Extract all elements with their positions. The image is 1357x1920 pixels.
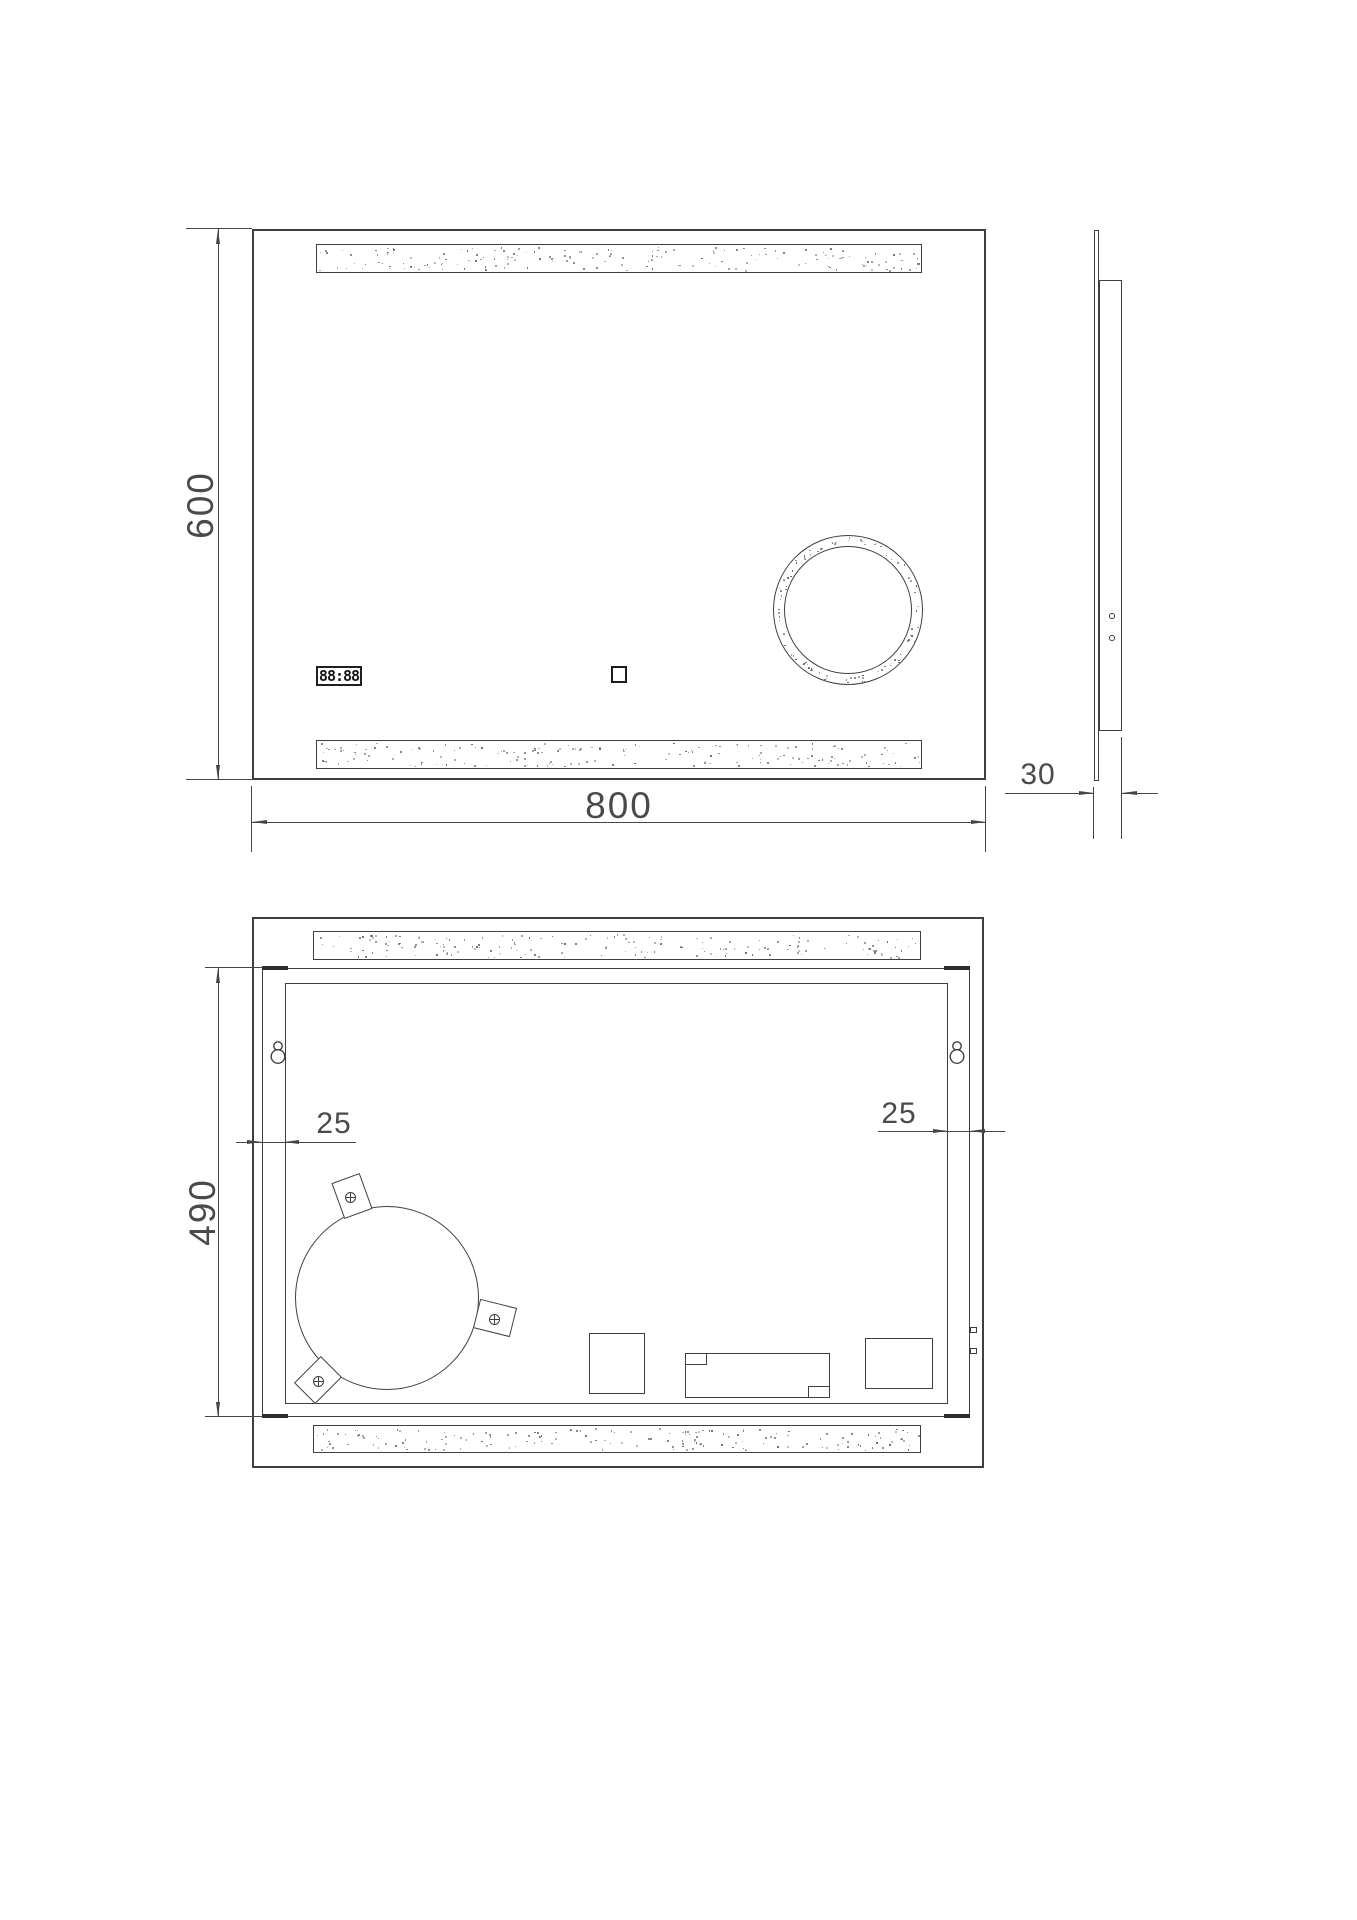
frame-corner-tick-bl — [262, 1414, 288, 1418]
junction-box — [589, 1333, 645, 1394]
stipple-dot — [439, 257, 440, 258]
stipple-dot — [759, 254, 760, 255]
stipple-dot — [538, 956, 540, 958]
stipple-dot — [851, 1433, 853, 1435]
frame-corner-tick-tl — [262, 966, 288, 970]
stipple-dot — [779, 616, 781, 618]
stipple-dot — [830, 760, 832, 762]
stipple-dot — [777, 758, 779, 760]
stipple-dot — [617, 934, 618, 935]
stipple-dot — [369, 939, 371, 941]
stipple-dot — [459, 747, 460, 748]
stipple-dot — [376, 743, 377, 744]
stipple-dot — [842, 763, 843, 764]
stipple-dot — [842, 250, 844, 252]
stipple-dot — [861, 756, 863, 758]
stipple-dot — [586, 761, 588, 763]
stipple-dot — [868, 1434, 869, 1435]
stipple-dot — [680, 946, 682, 948]
dim-490-arrow-down — [216, 1402, 220, 1417]
stipple-dot — [575, 943, 577, 945]
stipple-dot — [755, 259, 756, 260]
stipple-dot — [490, 1444, 491, 1445]
stipple-dot — [863, 949, 864, 950]
stipple-dot — [375, 935, 377, 937]
stipple-dot — [789, 945, 790, 946]
stipple-dot — [878, 1432, 880, 1434]
stipple-dot — [715, 745, 716, 746]
stipple-dot — [654, 942, 655, 943]
stipple-dot — [467, 250, 468, 251]
stipple-dot — [551, 258, 553, 260]
stipple-dot — [864, 942, 866, 944]
stipple-dot — [538, 748, 539, 749]
stipple-dot — [792, 570, 794, 572]
stipple-dot — [393, 252, 394, 253]
stipple-dot — [760, 759, 761, 760]
stipple-dot — [858, 1444, 859, 1445]
stipple-dot — [709, 263, 710, 264]
stipple-dot — [359, 937, 361, 939]
stipple-dot — [878, 940, 879, 941]
stipple-dot — [679, 265, 680, 266]
stipple-dot — [410, 257, 412, 259]
stipple-dot — [701, 258, 702, 259]
stipple-dot — [901, 268, 902, 269]
stipple-dot — [759, 1429, 760, 1430]
stipple-dot — [871, 269, 873, 271]
stipple-dot — [847, 682, 849, 684]
stipple-dot — [738, 765, 739, 766]
stipple-dot — [867, 261, 869, 263]
stipple-dot — [623, 751, 624, 752]
stipple-dot — [555, 1438, 557, 1440]
stipple-dot — [635, 744, 636, 745]
stipple-dot — [466, 1439, 467, 1440]
stipple-dot — [805, 263, 806, 264]
stipple-dot — [434, 939, 435, 940]
stipple-dot — [590, 1441, 592, 1443]
stipple-dot — [914, 757, 915, 758]
stipple-dot — [780, 590, 782, 592]
stipple-dot — [564, 943, 565, 944]
stipple-dot — [846, 679, 848, 681]
stipple-dot — [685, 751, 686, 752]
stipple-dot — [919, 762, 920, 763]
stipple-dot — [541, 752, 542, 753]
stipple-dot — [530, 949, 531, 950]
stipple-dot — [449, 939, 450, 940]
stipple-dot — [718, 753, 719, 754]
stipple-dot — [621, 264, 622, 265]
stipple-dot — [327, 1447, 328, 1448]
stipple-dot — [607, 937, 608, 938]
stipple-dot — [843, 257, 844, 258]
rear-led-strip-bottom — [313, 1425, 921, 1453]
screw-icon — [313, 1376, 324, 1387]
stipple-dot — [511, 257, 512, 258]
stipple-dot — [605, 947, 607, 949]
dim-25-left-label: 25 — [316, 1107, 351, 1141]
stipple-dot — [656, 256, 657, 257]
led-driver-notch-br — [808, 1386, 830, 1398]
stipple-dot — [374, 747, 375, 748]
stipple-dot — [812, 748, 813, 749]
stipple-dot — [661, 256, 662, 257]
stipple-dot — [775, 250, 776, 251]
stipple-dot — [526, 1441, 527, 1442]
stipple-dot — [669, 1433, 670, 1434]
stipple-dot — [495, 265, 497, 267]
stipple-dot — [386, 950, 387, 951]
stipple-dot — [832, 542, 834, 544]
stipple-dot — [719, 746, 720, 747]
stipple-dot — [734, 948, 735, 949]
stipple-dot — [507, 263, 508, 264]
stipple-dot — [787, 747, 789, 749]
stipple-dot — [698, 1431, 700, 1433]
stipple-dot — [596, 267, 597, 268]
stipple-dot — [550, 761, 552, 763]
stipple-dot — [807, 940, 809, 942]
stipple-dot — [355, 754, 356, 755]
dim-490-ext-top — [205, 967, 263, 968]
dim-30-ext-right — [1121, 737, 1122, 839]
stipple-dot — [812, 669, 814, 671]
stipple-dot — [337, 1433, 338, 1434]
stipple-dot — [864, 544, 866, 546]
stipple-dot — [362, 950, 363, 951]
stipple-dot — [436, 954, 437, 955]
stipple-dot — [787, 577, 789, 579]
stipple-dot — [418, 269, 419, 270]
stipple-dot — [538, 247, 540, 249]
stipple-dot — [692, 751, 693, 752]
dim-25-right-arrow-a — [933, 1129, 948, 1133]
stipple-dot — [468, 260, 469, 261]
stipple-dot — [338, 763, 339, 764]
stipple-dot — [609, 256, 610, 257]
stipple-dot — [583, 268, 585, 270]
stipple-dot — [517, 255, 518, 256]
frame-corner-tick-br — [944, 1414, 970, 1418]
stipple-dot — [564, 250, 565, 251]
stipple-dot — [604, 1440, 605, 1441]
stipple-dot — [831, 756, 833, 758]
stipple-dot — [893, 753, 894, 754]
stipple-dot — [891, 559, 893, 561]
stipple-dot — [486, 1445, 488, 1447]
stipple-dot — [824, 948, 825, 949]
stipple-dot — [881, 754, 882, 755]
stipple-dot — [804, 663, 806, 665]
stipple-dot — [524, 758, 526, 760]
stipple-dot — [378, 1438, 379, 1439]
stipple-dot — [641, 951, 642, 952]
stipple-dot — [568, 745, 569, 746]
stipple-dot — [625, 938, 627, 940]
stipple-dot — [599, 748, 600, 749]
clock-digits: 88:88 — [319, 669, 359, 684]
stipple-dot — [350, 951, 351, 952]
stipple-dot — [783, 755, 784, 756]
stipple-dot — [328, 749, 329, 750]
stipple-dot — [564, 957, 565, 958]
stipple-dot — [886, 555, 888, 557]
stipple-dot — [625, 951, 626, 952]
stipple-dot — [715, 266, 716, 267]
stipple-dot — [320, 252, 321, 253]
dim-800-arrow-right — [971, 820, 986, 824]
stipple-dot — [602, 1449, 603, 1450]
stipple-dot — [702, 948, 703, 949]
stipple-dot — [787, 1446, 789, 1448]
stipple-dot — [723, 949, 724, 950]
stipple-dot — [445, 259, 446, 260]
stipple-dot — [405, 1439, 406, 1440]
stipple-dot — [696, 1442, 697, 1443]
stipple-dot — [614, 936, 615, 937]
stipple-dot — [636, 1445, 638, 1447]
stipple-dot — [504, 267, 505, 268]
stipple-dot — [828, 763, 829, 764]
dim-490-arrow-up — [216, 968, 220, 983]
stipple-dot — [435, 1449, 436, 1450]
stipple-dot — [795, 560, 797, 562]
stipple-dot — [748, 745, 749, 746]
stipple-dot — [534, 954, 536, 956]
stipple-dot — [399, 936, 400, 937]
stipple-dot — [847, 1441, 849, 1443]
stipple-dot — [901, 1438, 902, 1439]
stipple-dot — [835, 543, 837, 545]
stipple-dot — [801, 954, 802, 955]
stipple-dot — [323, 752, 324, 753]
stipple-dot — [696, 938, 697, 939]
led-driver-notch-tl — [685, 1353, 707, 1365]
stipple-dot — [775, 745, 777, 747]
stipple-dot — [474, 765, 475, 766]
stipple-dot — [822, 759, 823, 760]
magnifier-mirror-inner — [784, 546, 912, 674]
stipple-dot — [474, 948, 476, 950]
dim-600-label: 600 — [180, 471, 222, 539]
stipple-dot — [838, 748, 839, 749]
stipple-dot — [895, 947, 896, 948]
stipple-dot — [595, 1428, 596, 1429]
stipple-dot — [601, 955, 602, 956]
stipple-dot — [815, 254, 816, 255]
stipple-dot — [866, 265, 867, 266]
stipple-dot — [539, 258, 541, 260]
stipple-dot — [802, 762, 803, 763]
stipple-dot — [720, 948, 721, 949]
stipple-dot — [900, 1439, 901, 1440]
stipple-dot — [387, 945, 388, 946]
stipple-dot — [908, 577, 910, 579]
stipple-dot — [685, 1431, 686, 1432]
stipple-dot — [693, 765, 695, 767]
stipple-dot — [905, 743, 906, 744]
stipple-dot — [765, 254, 766, 255]
stipple-dot — [518, 248, 520, 250]
side-hole-top — [1109, 613, 1115, 619]
stipple-dot — [621, 1442, 623, 1444]
stipple-dot — [552, 764, 553, 765]
stipple-dot — [858, 676, 860, 678]
stipple-dot — [326, 761, 327, 762]
stipple-dot — [883, 763, 884, 764]
stipple-dot — [746, 1450, 747, 1451]
dim-30-arrow-left — [1079, 791, 1094, 795]
stipple-dot — [322, 944, 323, 945]
stipple-dot — [515, 1432, 517, 1434]
stipple-dot — [516, 950, 517, 951]
stipple-dot — [319, 270, 320, 271]
stipple-dot — [622, 257, 624, 259]
stipple-dot — [805, 249, 806, 250]
stipple-dot — [475, 260, 476, 261]
stipple-dot — [372, 937, 374, 939]
stipple-dot — [362, 1435, 364, 1437]
stipple-dot — [581, 251, 582, 252]
stipple-dot — [534, 1442, 535, 1443]
stipple-dot — [903, 1440, 905, 1442]
stipple-dot — [340, 750, 342, 752]
stipple-dot — [507, 256, 509, 258]
stipple-dot — [713, 252, 715, 254]
stipple-dot — [916, 268, 917, 269]
stipple-dot — [780, 599, 782, 601]
stipple-dot — [414, 267, 415, 268]
stipple-dot — [521, 935, 523, 937]
stipple-dot — [604, 261, 605, 262]
stipple-dot — [907, 1432, 908, 1433]
stipple-dot — [822, 1447, 823, 1448]
stipple-dot — [770, 1436, 772, 1438]
stipple-dot — [346, 268, 347, 269]
stipple-dot — [375, 250, 376, 251]
stipple-dot — [389, 268, 390, 269]
stipple-dot — [347, 1444, 348, 1445]
stipple-dot — [778, 1446, 779, 1447]
stipple-dot — [481, 1441, 482, 1442]
stipple-dot — [387, 248, 388, 249]
stipple-dot — [524, 765, 526, 767]
stipple-dot — [537, 1432, 539, 1434]
mirror-technical-drawing: 88:88 600 800 — [0, 0, 1357, 1920]
stipple-dot — [353, 758, 355, 760]
stipple-dot — [441, 1439, 442, 1440]
stipple-dot — [564, 766, 565, 767]
stipple-dot — [736, 762, 737, 763]
stipple-dot — [386, 746, 387, 747]
stipple-dot — [514, 259, 516, 261]
stipple-dot — [440, 946, 441, 947]
stipple-dot — [399, 1430, 401, 1432]
stipple-dot — [485, 1432, 486, 1433]
stipple-dot — [808, 667, 810, 669]
stipple-dot — [854, 677, 856, 679]
stipple-dot — [337, 267, 338, 268]
dim-25-right-arrow-b — [970, 1129, 985, 1133]
stipple-dot — [471, 744, 472, 745]
stipple-dot — [715, 247, 716, 248]
stipple-dot — [614, 1432, 615, 1433]
stipple-dot — [779, 588, 781, 590]
stipple-dot — [788, 1431, 789, 1432]
stipple-dot — [751, 255, 752, 256]
stipple-dot — [509, 1447, 510, 1448]
stipple-dot — [908, 1449, 909, 1450]
stipple-dot — [777, 258, 778, 259]
stipple-dot — [657, 250, 658, 251]
stipple-dot — [682, 1440, 683, 1441]
stipple-dot — [443, 950, 444, 951]
stipple-dot — [874, 544, 876, 546]
stipple-dot — [365, 749, 366, 750]
stipple-dot — [501, 751, 502, 752]
stipple-dot — [863, 265, 865, 267]
stipple-dot — [590, 935, 591, 936]
stipple-dot — [401, 947, 402, 948]
stipple-dot — [372, 952, 373, 953]
stipple-dot — [544, 743, 546, 745]
stipple-dot — [721, 1444, 722, 1445]
stipple-dot — [659, 1428, 660, 1429]
stipple-dot — [510, 761, 511, 762]
stipple-dot — [917, 258, 918, 259]
stipple-dot — [909, 1445, 910, 1446]
dim-800-arrow-left — [252, 820, 267, 824]
stipple-dot — [479, 947, 480, 948]
stipple-dot — [541, 1435, 542, 1436]
stipple-dot — [716, 956, 717, 957]
stipple-dot — [580, 1430, 581, 1431]
stipple-dot — [557, 750, 559, 752]
side-back-panel — [1099, 280, 1122, 731]
stipple-dot — [679, 754, 680, 755]
stipple-dot — [822, 548, 824, 550]
stipple-dot — [759, 949, 760, 950]
stipple-dot — [464, 268, 465, 269]
stipple-dot — [363, 1437, 365, 1439]
stipple-dot — [710, 953, 712, 955]
stipple-dot — [328, 1441, 329, 1442]
stipple-dot — [839, 258, 840, 259]
stipple-dot — [769, 954, 771, 956]
stipple-dot — [862, 677, 864, 679]
stipple-dot — [507, 259, 508, 260]
stipple-dot — [356, 744, 357, 745]
stipple-dot — [829, 267, 830, 268]
stipple-dot — [514, 944, 515, 945]
stipple-dot — [418, 937, 420, 939]
stipple-dot — [527, 267, 528, 268]
stipple-dot — [887, 941, 888, 942]
stipple-dot — [506, 752, 507, 753]
stipple-dot — [541, 1441, 542, 1442]
stipple-dot — [578, 763, 580, 765]
stipple-dot — [526, 252, 527, 253]
stipple-dot — [848, 540, 850, 542]
stipple-dot — [812, 743, 813, 744]
stipple-dot — [386, 936, 387, 937]
stipple-dot — [421, 763, 422, 764]
stipple-dot — [743, 1448, 744, 1449]
stipple-dot — [534, 748, 535, 749]
stipple-dot — [667, 1440, 668, 1441]
